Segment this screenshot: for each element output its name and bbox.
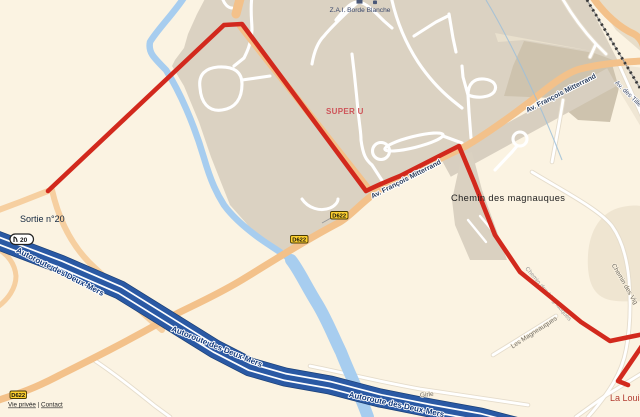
svg-text:Z.A.I. Borde Blanche: Z.A.I. Borde Blanche xyxy=(330,7,391,14)
svg-text:Girle: Girle xyxy=(420,391,435,399)
svg-text:D622: D622 xyxy=(332,214,346,220)
svg-text:SUPER U: SUPER U xyxy=(326,107,364,116)
svg-text:D622: D622 xyxy=(292,238,306,244)
svg-text:Vie privée | Contact: Vie privée | Contact xyxy=(8,402,63,409)
svg-text:D622: D622 xyxy=(11,393,25,399)
svg-text:La Louisian: La Louisian xyxy=(610,393,640,403)
svg-text:Sortie n°20: Sortie n°20 xyxy=(20,214,65,224)
svg-text:Chemin des magnauques: Chemin des magnauques xyxy=(451,193,565,203)
svg-text:20: 20 xyxy=(20,237,28,244)
